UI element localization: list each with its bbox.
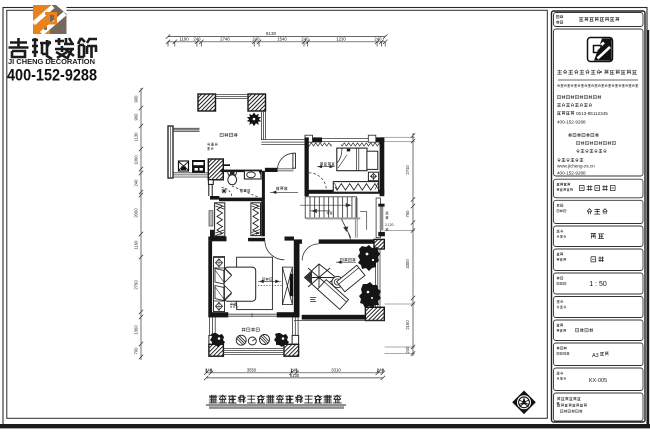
- svg-text:960: 960: [134, 113, 139, 121]
- svg-text:760: 760: [405, 210, 410, 218]
- svg-text:2.120: 2.120: [385, 223, 394, 227]
- svg-text:6130: 6130: [266, 31, 277, 36]
- svg-text:1160: 1160: [134, 240, 139, 250]
- svg-text:1190: 1190: [179, 37, 189, 42]
- svg-text:400-152-9288: 400-152-9288: [557, 120, 586, 125]
- svg-text:3310: 3310: [331, 367, 341, 372]
- svg-text:JI CHENG DECORATION: JI CHENG DECORATION: [8, 59, 95, 66]
- svg-text:700: 700: [134, 347, 139, 355]
- svg-text:0513-85112345: 0513-85112345: [576, 111, 608, 116]
- svg-text:240: 240: [193, 37, 201, 42]
- svg-text:400-152-9288: 400-152-9288: [7, 67, 97, 85]
- svg-text:1360: 1360: [134, 325, 139, 335]
- svg-text:900: 900: [134, 95, 139, 103]
- svg-text:400-152-9288: 400-152-9288: [557, 171, 586, 176]
- svg-text:2760: 2760: [134, 280, 139, 290]
- svg-text:KX-005: KX-005: [589, 378, 607, 384]
- svg-text:2160: 2160: [405, 320, 410, 330]
- svg-text:1 : 50: 1 : 50: [589, 281, 607, 288]
- svg-text:3550: 3550: [247, 367, 257, 372]
- svg-text:6130: 6130: [290, 373, 300, 378]
- svg-text:1060: 1060: [134, 155, 139, 165]
- svg-text:240: 240: [134, 179, 139, 187]
- svg-text:240: 240: [205, 367, 213, 372]
- svg-text:240: 240: [374, 37, 382, 42]
- svg-text:240: 240: [252, 37, 260, 42]
- svg-text:2740: 2740: [220, 37, 230, 42]
- svg-text:2740: 2740: [405, 165, 410, 175]
- svg-text:1130: 1130: [134, 132, 139, 142]
- svg-text:1230: 1230: [336, 37, 346, 42]
- svg-text:2000: 2000: [134, 208, 139, 218]
- svg-text:www.jicheng-zs.cn: www.jicheng-zs.cn: [557, 164, 595, 169]
- svg-text:240: 240: [301, 37, 309, 42]
- svg-text:240: 240: [377, 367, 385, 372]
- svg-text:3300: 3300: [405, 259, 410, 269]
- svg-text:A3: A3: [592, 353, 599, 359]
- svg-text:240: 240: [405, 346, 410, 354]
- svg-text:1540: 1540: [277, 37, 287, 42]
- svg-text:240: 240: [290, 367, 298, 372]
